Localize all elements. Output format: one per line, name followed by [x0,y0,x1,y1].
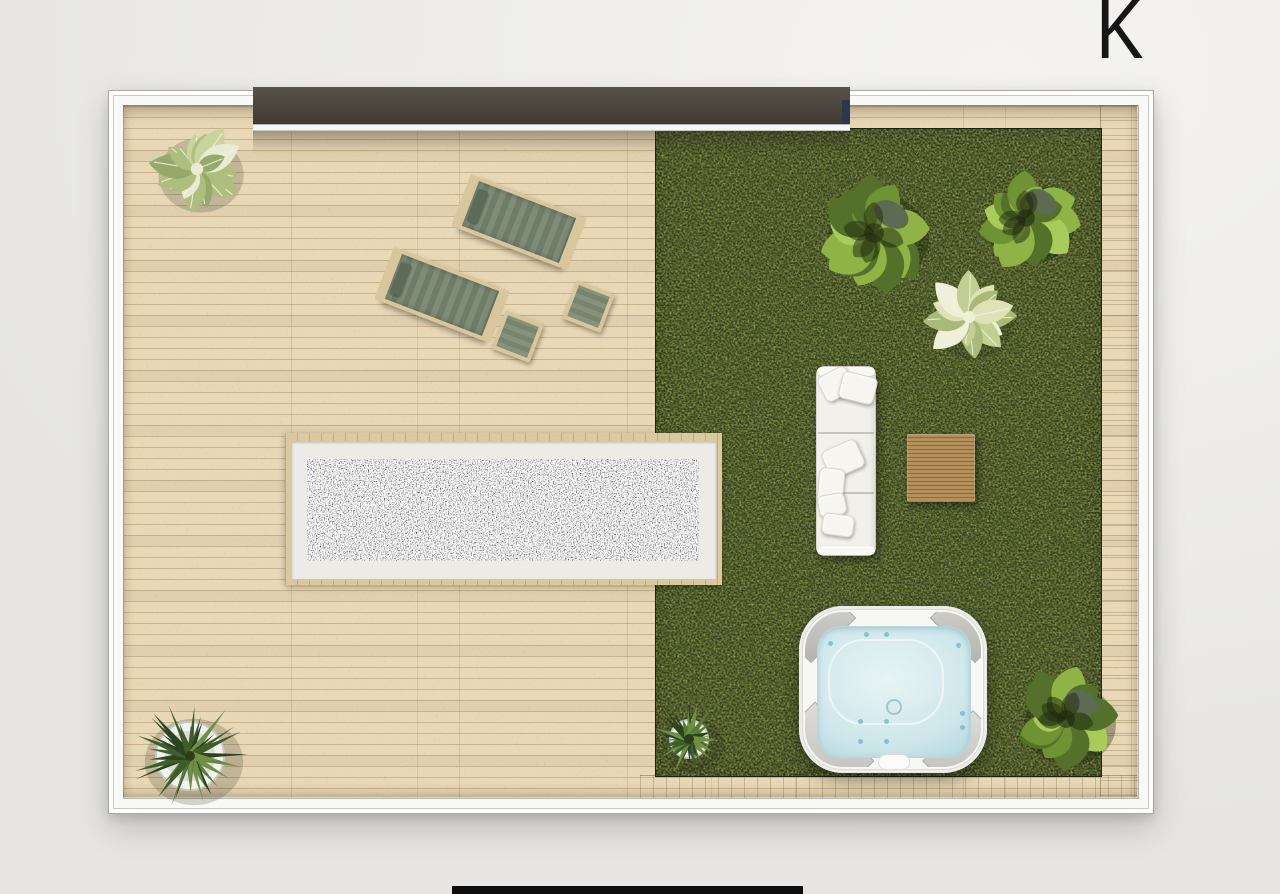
bottom-crop-bar [452,886,803,894]
door-sill [253,123,850,131]
tub-jet [884,719,889,724]
tub-jet [884,739,889,744]
tub-drain [886,699,902,715]
door-shadow [253,130,850,154]
garden-sofa [816,366,876,556]
sofa-seam [818,432,874,434]
gravel-bed [307,459,699,561]
tub-jet [858,719,863,724]
tub-jet [956,643,961,648]
render-canvas: K [0,0,1280,894]
tub-jet [858,739,863,744]
lounger-headrest [389,261,412,297]
tub-seat-contour [828,639,944,725]
deck-border-strip-right [1100,105,1138,797]
deck-border-strip-bottom [640,775,1137,798]
coffee-table [907,434,975,502]
plan-letter: K [1096,0,1142,71]
tub-jet [864,632,869,637]
tub-jet [960,725,965,730]
gravel-texture [307,459,699,561]
hot-tub-step [878,754,910,770]
hot-tub [799,606,987,773]
tub-jet [884,632,889,637]
sofa-pillow [821,512,856,538]
tub-jet [960,711,965,716]
lounger-headrest [466,188,489,224]
door-frame-edge [842,100,850,124]
tub-jet [828,641,833,646]
hot-tub-water [817,626,971,758]
door-opening [253,87,850,124]
sofa-armrest-bottom [817,546,875,555]
